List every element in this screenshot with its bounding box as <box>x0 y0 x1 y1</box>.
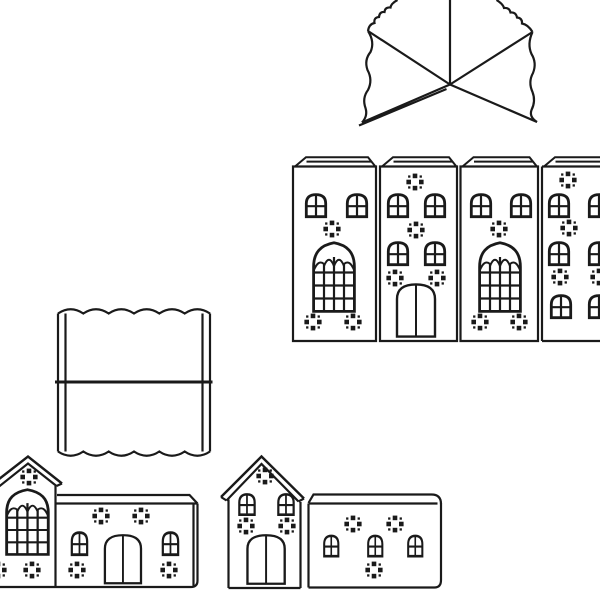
roof-tab <box>544 157 600 166</box>
scalloped-edge <box>58 452 210 456</box>
gothic-window <box>314 243 355 312</box>
dot-ornament <box>92 508 109 525</box>
arch-window <box>72 533 87 555</box>
dot-ornament <box>304 314 321 331</box>
arch-window <box>306 195 325 217</box>
dot-ornament <box>20 469 37 486</box>
gothic-window <box>480 243 521 312</box>
roof-strip <box>309 495 442 505</box>
scalloped-edge <box>58 309 210 313</box>
arched-door <box>397 284 435 336</box>
dot-ornament <box>559 172 576 189</box>
arch-window <box>368 536 382 556</box>
scalloped-edge <box>362 31 372 123</box>
dot-ornament <box>160 562 177 579</box>
roof-tab <box>295 157 375 166</box>
dot-ornament <box>23 562 40 579</box>
arch-window <box>589 243 600 265</box>
arch-window <box>511 195 530 217</box>
wall-strip-panel-4 <box>542 157 600 341</box>
arch-window <box>589 195 600 217</box>
arched-door <box>247 535 284 584</box>
scalloped-edge <box>368 0 398 31</box>
dot-ornament <box>323 221 340 238</box>
wall-strip-panel-3 <box>461 157 539 341</box>
arch-window <box>163 533 178 555</box>
arch-window <box>425 243 444 265</box>
dot-ornament <box>237 518 254 535</box>
front-gable <box>221 457 304 589</box>
template-drawing <box>0 0 600 600</box>
dot-ornament <box>428 270 445 287</box>
dot-ornament <box>256 468 273 485</box>
wall-strip-panel-2 <box>380 157 457 341</box>
dot-ornament <box>386 270 403 287</box>
dot-ornament <box>490 221 507 238</box>
arched-door <box>105 535 141 583</box>
dot-ornament <box>132 508 149 525</box>
arch-window <box>589 296 600 318</box>
roof-tab <box>382 157 456 166</box>
arch-window <box>239 494 254 514</box>
tower-roof-panel <box>359 0 537 126</box>
nave-roof-panel <box>55 309 213 456</box>
roof-tab <box>463 157 537 166</box>
dot-ornament <box>560 220 577 237</box>
scalloped-edge <box>529 32 537 122</box>
arch-window <box>549 195 568 217</box>
side-wall <box>56 495 198 587</box>
roof-strip <box>56 495 198 504</box>
dot-ornament <box>0 562 7 579</box>
arch-window <box>388 243 407 265</box>
glue-flap-edge <box>359 85 450 126</box>
arch-window <box>347 195 366 217</box>
dot-ornament <box>510 314 527 331</box>
gable-end <box>0 457 62 588</box>
left-assembly <box>0 457 198 588</box>
scalloped-edge <box>497 0 533 32</box>
dot-ornament <box>407 222 424 239</box>
arch-window <box>278 494 293 514</box>
arch-window <box>425 195 444 217</box>
dot-ornament <box>365 562 382 579</box>
arch-window <box>549 243 568 265</box>
arch-window <box>324 536 338 556</box>
gothic-window <box>7 490 49 555</box>
arch-window <box>471 195 490 217</box>
right-side-wall <box>309 495 442 588</box>
dot-ornament <box>551 269 568 286</box>
dot-ornament <box>344 314 361 331</box>
arch-window <box>551 296 570 318</box>
dot-ornament <box>68 562 85 579</box>
dot-ornament <box>590 269 600 286</box>
dot-ornament <box>386 516 403 533</box>
arch-window <box>388 195 407 217</box>
dot-ornament <box>278 518 295 535</box>
papercraft-template-sheet <box>0 0 600 600</box>
dot-ornament <box>406 174 423 191</box>
arch-window <box>408 536 422 556</box>
tower-wall-strip <box>293 157 600 341</box>
dot-ornament <box>471 314 488 331</box>
wall-strip-panel-1 <box>293 157 376 341</box>
dot-ornament <box>344 516 361 533</box>
